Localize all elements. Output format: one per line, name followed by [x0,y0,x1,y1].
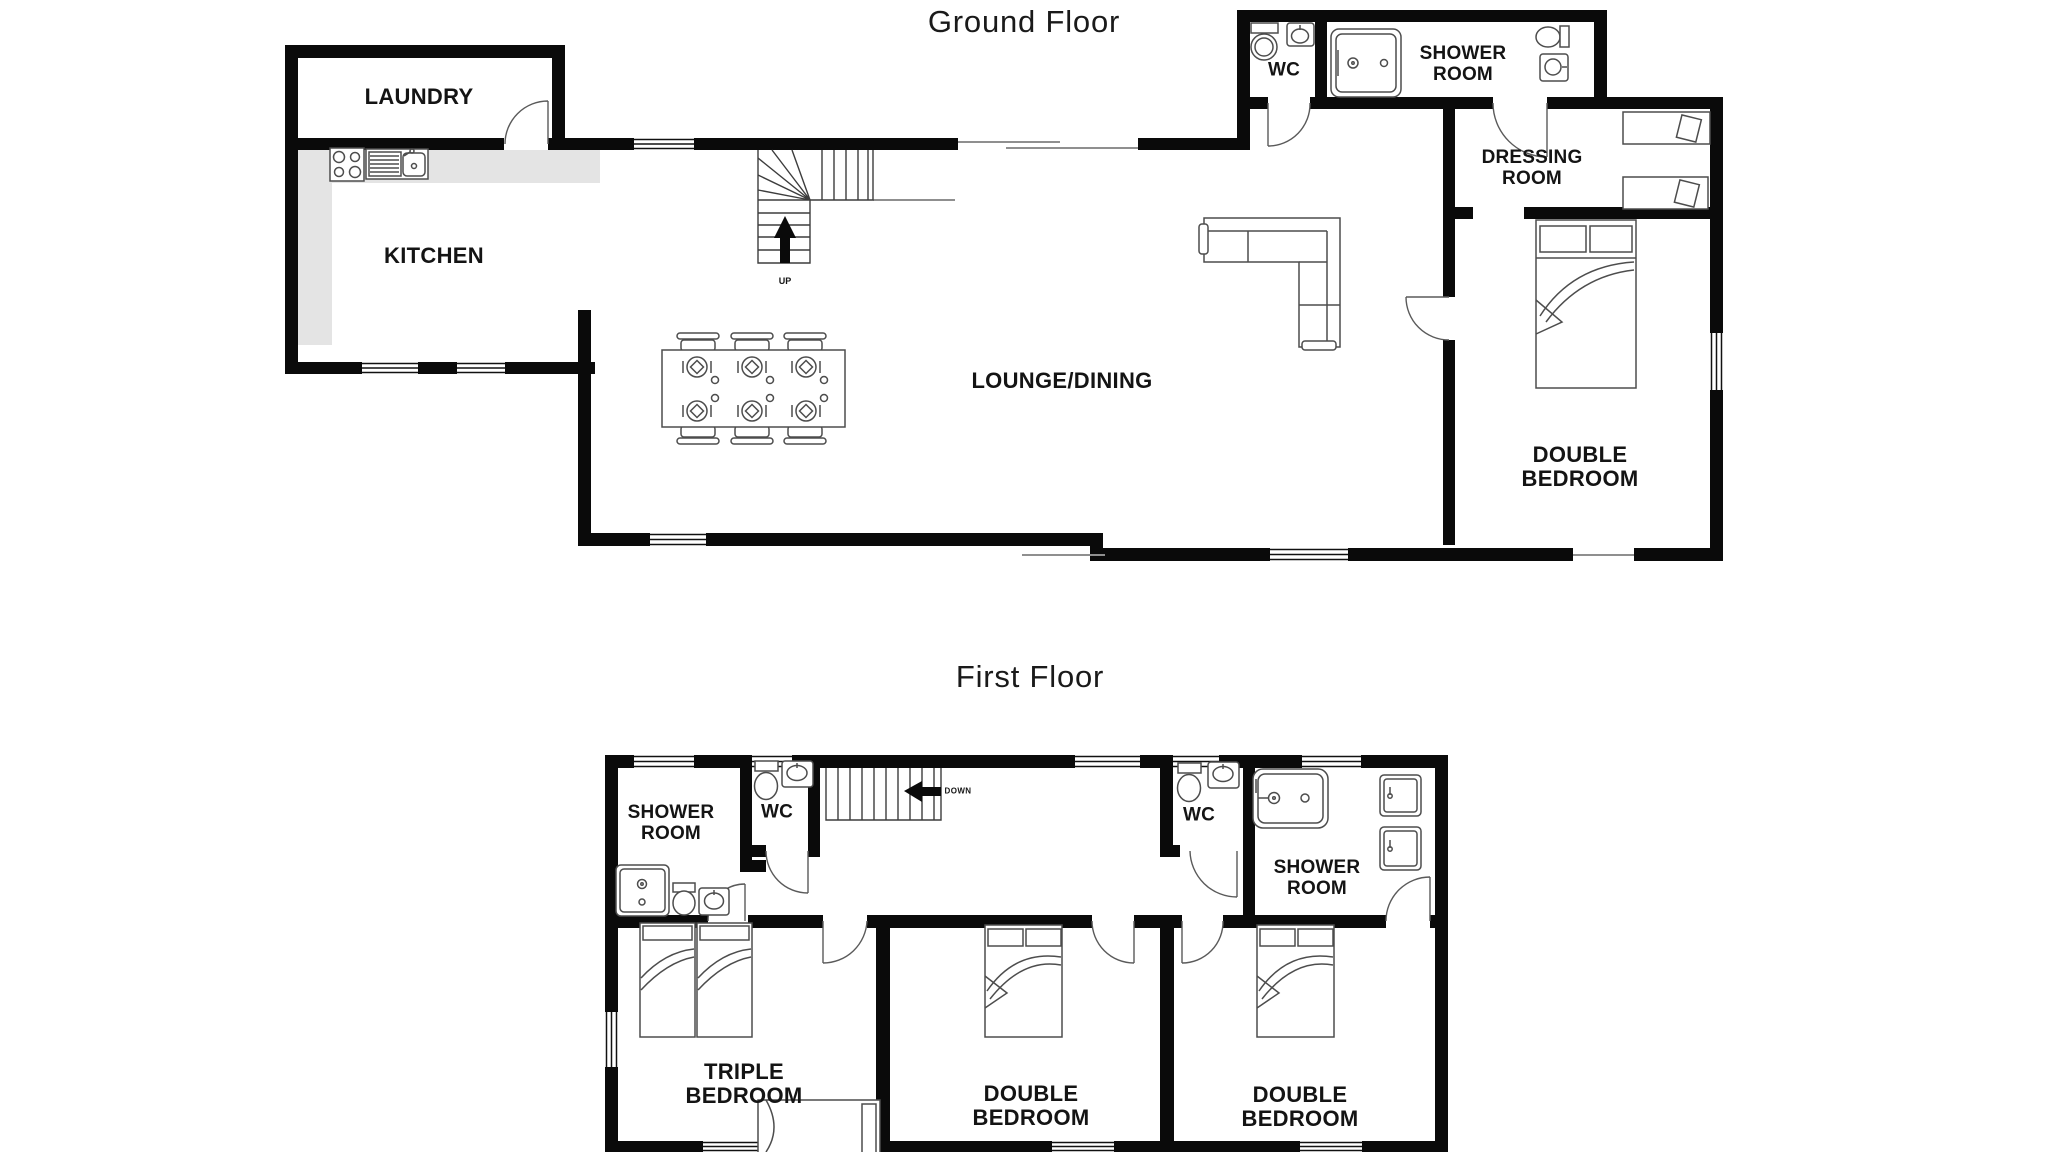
ground-walls [285,10,1723,561]
hob-icon [330,148,364,181]
shower-cubicle-icon [616,865,669,916]
floorplan-drawing [0,0,2048,1152]
sink-icon [1287,23,1314,46]
double-bed-icon [1536,220,1636,388]
room-label-shower-room-left: SHOWER ROOM [628,802,715,844]
window-icon [1270,548,1348,561]
stairs-up-icon [758,150,873,263]
label-line: ROOM [1420,64,1507,85]
room-label-laundry: LAUNDRY [365,85,474,109]
first-floor-title: First Floor [956,659,1104,695]
label-line: BEDROOM [686,1084,803,1108]
toilet-icon [1178,763,1202,802]
room-label-shower-room-right: SHOWER ROOM [1274,857,1361,899]
double-bed-icon [1257,925,1334,1037]
window-icon [634,755,694,768]
window-icon [457,362,505,374]
window-icon [650,533,706,546]
label-line: DOUBLE [973,1082,1090,1106]
sink-icon [1380,775,1421,816]
label-line: ROOM [628,823,715,844]
single-bed-icon [697,923,752,1037]
room-label-double-bedroom-left: DOUBLE BEDROOM [973,1082,1090,1130]
window-icon [1710,333,1723,390]
sink-icon [1540,54,1568,81]
window-icon [1300,1141,1362,1152]
sink-icon [782,761,813,787]
room-label-kitchen: KITCHEN [384,244,484,268]
room-label-shower-room-ground: SHOWER ROOM [1420,43,1507,85]
label-line: DOUBLE [1242,1083,1359,1107]
room-label-wc-left: WC [761,802,793,823]
label-line: BEDROOM [1522,467,1639,491]
label-line: ROOM [1482,168,1583,189]
toilet-icon [673,883,695,915]
label-line: SHOWER [628,802,715,823]
room-label-triple-bedroom: TRIPLE BEDROOM [686,1060,803,1108]
floorplan-page: Ground Floor First Floor LAUNDRY KITCHEN… [0,0,2048,1152]
toilet-icon [1536,26,1569,47]
sofa-icon [1199,218,1340,350]
window-icon [1052,1141,1114,1152]
window-icon [1075,755,1140,768]
room-label-double-bedroom-ground: DOUBLE BEDROOM [1522,443,1639,491]
toilet-icon [755,761,779,800]
window-icon [634,138,694,150]
single-bed-icon [640,923,695,1037]
toilet-icon [1251,23,1278,60]
double-bed-icon [985,925,1062,1037]
label-line: SHOWER [1420,43,1507,64]
dining-table-icon [662,333,845,444]
window-icon [703,1141,765,1152]
label-line: DRESSING [1482,147,1583,168]
room-label-wc-ground: WC [1268,60,1300,81]
label-line: SHOWER [1274,857,1361,878]
shower-cubicle-icon [1331,29,1401,97]
label-line: DOUBLE [1522,443,1639,467]
ground-floor-plan [285,10,1723,561]
room-label-double-bedroom-right: DOUBLE BEDROOM [1242,1083,1359,1131]
stairs-down-label: DOWN [945,787,972,796]
stairs-down-icon [826,768,941,820]
sink-icon [699,888,729,915]
door-arc [505,101,1547,340]
stairs-up-label: UP [779,276,792,286]
dressing-table-icon [1623,177,1708,209]
window-icon [605,1012,618,1067]
kitchen-sink-icon [366,149,428,179]
window-icon [1302,755,1361,768]
label-line: ROOM [1274,878,1361,899]
sink-icon [1208,762,1239,788]
label-line: BEDROOM [1242,1107,1359,1131]
opening-threshold [873,142,1634,555]
ground-floor-title: Ground Floor [928,4,1120,40]
sink-icon [1380,827,1421,870]
room-label-wc-right: WC [1183,805,1215,826]
dressing-table-icon [1623,112,1710,144]
room-label-dressing-room: DRESSING ROOM [1482,147,1583,189]
label-line: TRIPLE [686,1060,803,1084]
label-line: BEDROOM [973,1106,1090,1130]
window-icon [362,362,418,374]
shower-cubicle-icon [1253,769,1328,828]
room-label-lounge-dining: LOUNGE/DINING [971,369,1152,393]
